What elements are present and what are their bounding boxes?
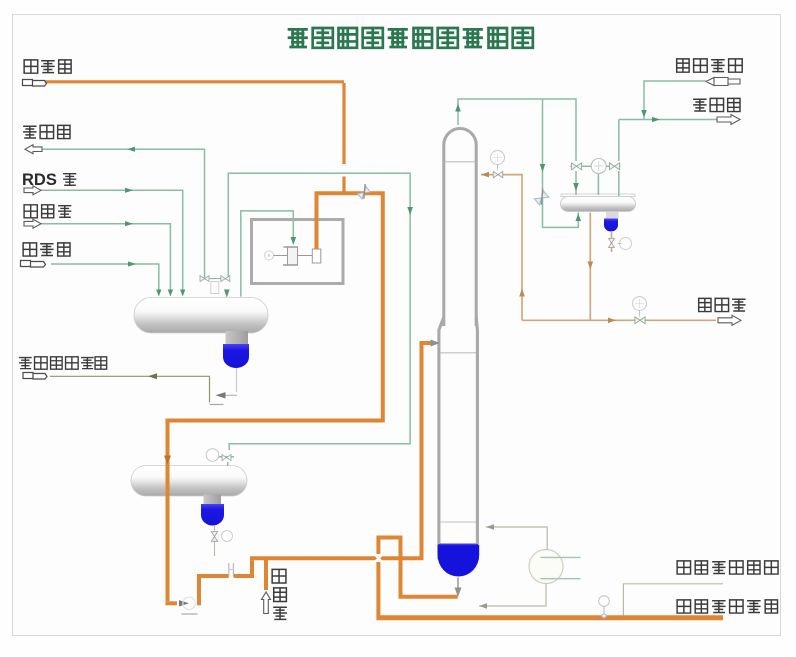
svg-text:RDS: RDS (22, 171, 57, 189)
